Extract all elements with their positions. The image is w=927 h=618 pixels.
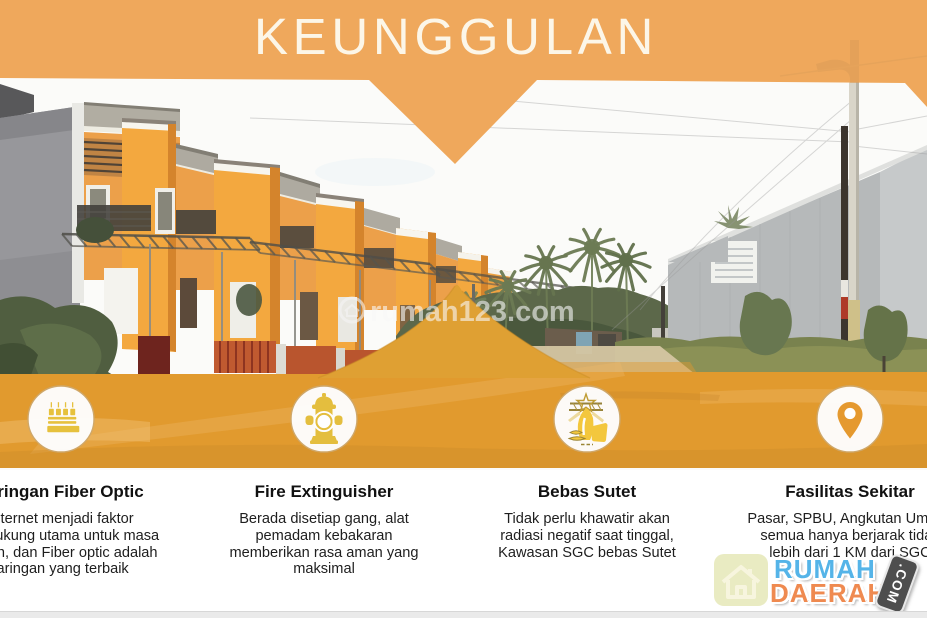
svg-text:rumah123.com: rumah123.com bbox=[370, 296, 575, 328]
